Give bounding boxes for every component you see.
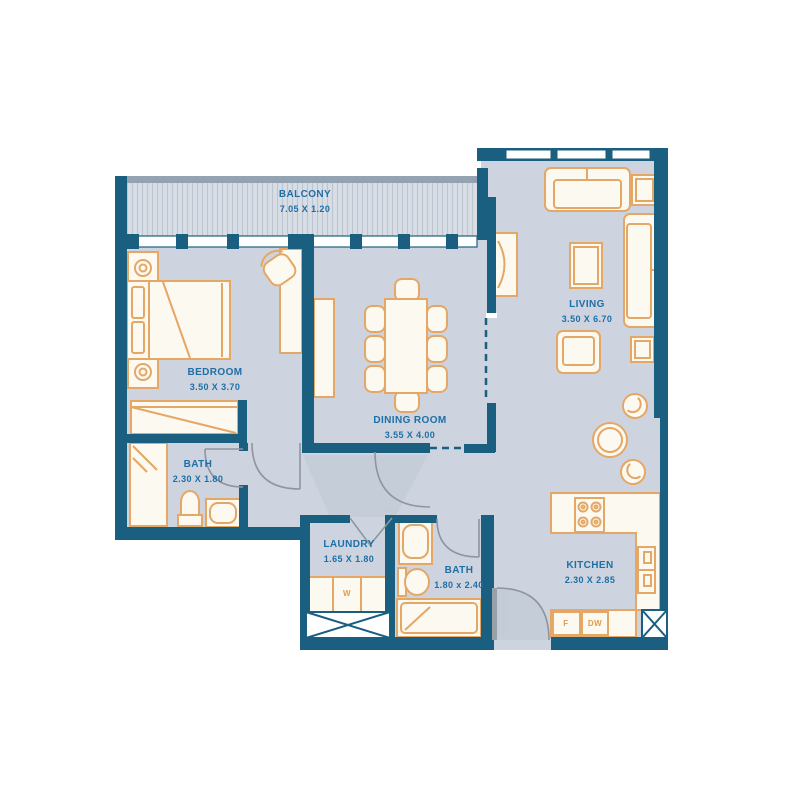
floor-plan: BALCONY 7.05 X 1.20 BEDROOM 3.50 X 3.70 …: [0, 0, 800, 800]
oven-tower: [638, 570, 655, 593]
balcony-dims: 7.05 X 1.20: [279, 202, 331, 216]
dishwasher-label: DW: [588, 619, 602, 628]
bedroom-label: BEDROOM 3.50 X 3.70: [187, 366, 242, 394]
dining-chair: [365, 366, 385, 392]
bath2-dims: 1.80 x 2.40: [434, 578, 483, 592]
bedroom-dims: 3.50 X 3.70: [187, 380, 242, 394]
bath2-name: BATH: [434, 564, 483, 578]
dining-chair: [395, 391, 419, 412]
bathtub: [397, 599, 481, 637]
kitchen-dims: 2.30 X 2.85: [565, 573, 615, 587]
window: [506, 150, 551, 159]
shower: [130, 443, 167, 526]
pillow: [132, 322, 144, 353]
bedroom-name: BEDROOM: [187, 366, 242, 380]
dining-name: DINING ROOM: [373, 414, 446, 428]
dining-label: DINING ROOM 3.55 X 4.00: [373, 414, 446, 442]
dining-chair: [365, 336, 385, 362]
toilet: [178, 515, 202, 526]
living-name: LIVING: [562, 298, 612, 312]
dining-chair: [365, 306, 385, 332]
living-label: LIVING 3.50 X 6.70: [562, 298, 612, 326]
bath1-label: BATH 2.30 X 1.80: [173, 458, 223, 486]
pillow: [132, 287, 144, 318]
laundry-name: LAUNDRY: [323, 538, 374, 552]
nightstand: [128, 252, 158, 284]
fridge-label: F: [563, 619, 568, 628]
dining-table: [385, 299, 427, 393]
nightstand: [128, 356, 158, 388]
laundry-dims: 1.65 X 1.80: [323, 552, 374, 566]
floor-plan-drawing: [0, 0, 800, 800]
dining-chair: [427, 336, 447, 362]
dining-chair: [427, 306, 447, 332]
entry-door-leaf: [492, 588, 497, 640]
window: [612, 150, 650, 159]
balcony-label: BALCONY 7.05 X 1.20: [279, 188, 331, 216]
kitchen-name: KITCHEN: [565, 559, 615, 573]
dining-chair: [427, 366, 447, 392]
laundry-label: LAUNDRY 1.65 X 1.80: [323, 538, 374, 566]
window: [557, 150, 606, 159]
kitchen-label: KITCHEN 2.30 X 2.85: [565, 559, 615, 587]
bath2-label: BATH 1.80 x 2.40: [434, 564, 483, 592]
oven-tower: [638, 547, 655, 570]
bath1-dims: 2.30 X 1.80: [173, 472, 223, 486]
living-dims: 3.50 X 6.70: [562, 312, 612, 326]
sideboard: [314, 299, 334, 397]
dining-dims: 3.55 X 4.00: [373, 428, 446, 442]
dining-chair: [395, 279, 419, 301]
washer-label: W: [343, 589, 351, 598]
balcony-name: BALCONY: [279, 188, 331, 202]
bath1-name: BATH: [173, 458, 223, 472]
